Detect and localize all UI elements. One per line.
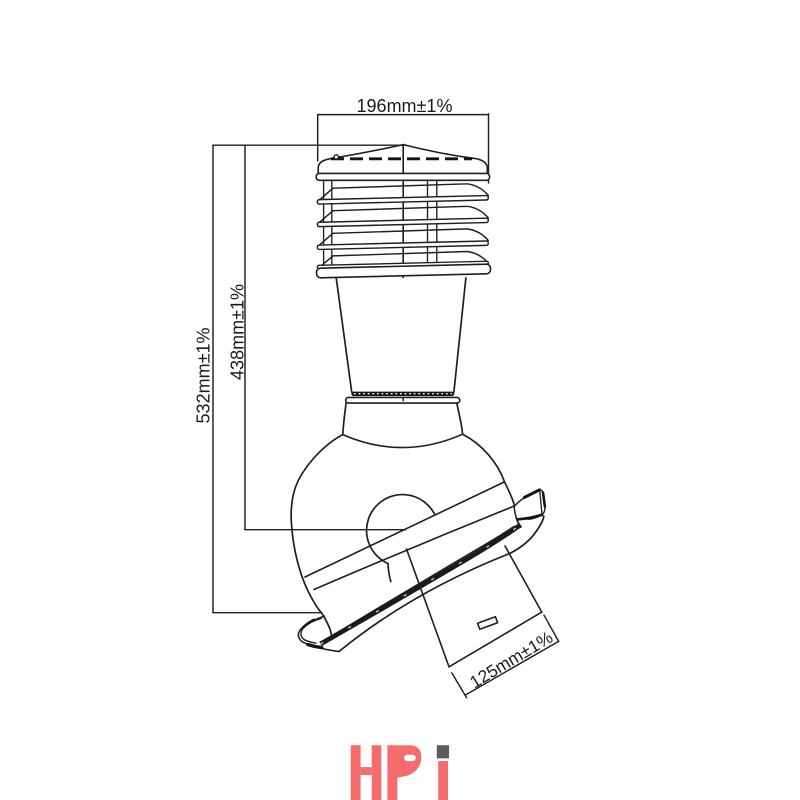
svg-text:532mm±1%: 532mm±1% xyxy=(194,328,214,424)
svg-text:196mm±1%: 196mm±1% xyxy=(357,96,453,116)
svg-text:125mm±1%: 125mm±1% xyxy=(466,627,556,692)
svg-text:438mm±1%: 438mm±1% xyxy=(227,284,247,380)
